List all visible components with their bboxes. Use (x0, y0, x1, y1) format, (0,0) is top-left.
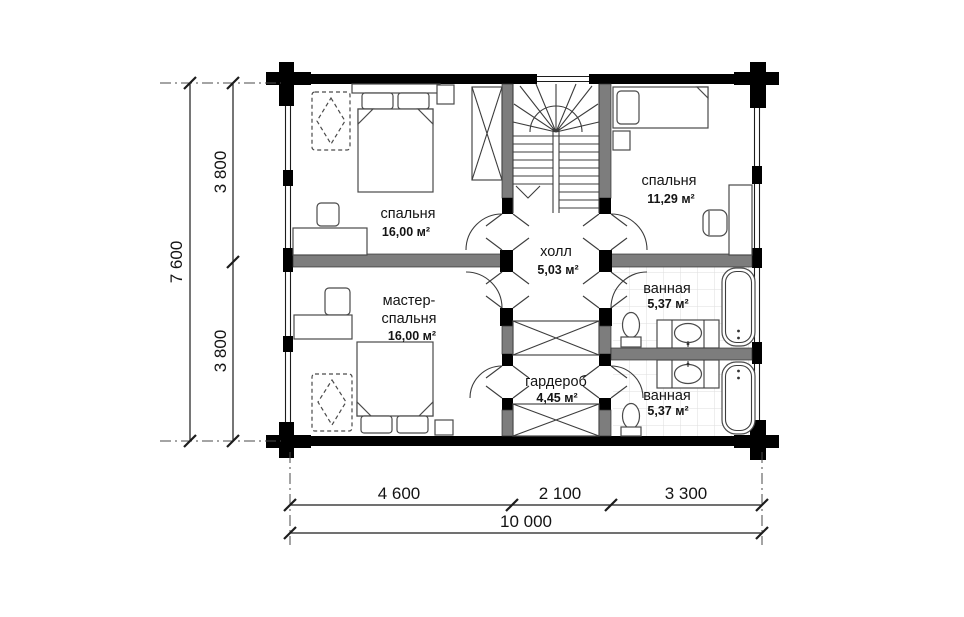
desk-icon (729, 185, 752, 255)
dim-horizontal-total: 10 000 (500, 512, 552, 531)
dimension-lines-left: 7 600 3 800 3 800 (160, 77, 281, 447)
room-area-bathroom-lower: 5,37 м² (647, 404, 688, 418)
bathtub-icon (722, 268, 755, 346)
desk-icon (294, 315, 352, 339)
dim-horizontal-left: 4 600 (378, 484, 421, 503)
room-area-bathroom-upper: 5,37 м² (647, 297, 688, 311)
room-label-bathroom-upper: ванная (643, 281, 691, 297)
nightstand-icon (613, 131, 630, 150)
double-bed-icon (352, 84, 440, 192)
room-area-bedroom-top-left: 16,00 м² (382, 225, 430, 239)
floor-plan-drawing: спальня 16,00 м² спальня 11,29 м² холл 5… (0, 0, 964, 617)
dim-horizontal-right: 3 300 (665, 484, 708, 503)
stairs-icon (513, 84, 599, 213)
single-bed-icon (613, 87, 708, 128)
room-label-wardrobe: гардероб (525, 374, 587, 390)
dim-vertical-total: 7 600 (167, 241, 186, 284)
room-area-hall: 5,03 м² (537, 263, 578, 277)
sink-vanity-icon (657, 360, 719, 388)
armchair-icon (312, 374, 352, 431)
stool-icon (325, 288, 350, 315)
wardrobe-x-icon (472, 87, 502, 180)
desk-icon (293, 228, 367, 255)
dim-vertical-bottom: 3 800 (211, 330, 230, 373)
armchair-icon (312, 92, 350, 150)
stool-icon (317, 203, 339, 226)
room-area-bedroom-top-right: 11,29 м² (647, 192, 694, 206)
room-label-master-line1: мастер- (383, 293, 436, 309)
room-label-bedroom-top-left: спальня (380, 206, 435, 222)
dim-vertical-top: 3 800 (211, 151, 230, 194)
double-bed-icon (357, 342, 433, 433)
room-label-bedroom-top-right: спальня (641, 173, 696, 189)
sink-vanity-icon (657, 320, 719, 348)
bedroom-top-right-furniture (613, 87, 752, 255)
toilet-icon (621, 313, 641, 348)
chair-icon (703, 210, 727, 236)
dimension-lines-bottom: 4 600 2 100 3 300 10 000 (284, 452, 768, 545)
bathtub-icon (722, 362, 755, 434)
floor-plan: спальня 16,00 м² спальня 11,29 м² холл 5… (0, 0, 964, 617)
toilet-icon (621, 404, 641, 437)
dim-horizontal-middle: 2 100 (539, 484, 582, 503)
room-label-hall: холл (540, 244, 572, 260)
room-area-master: 16,00 м² (388, 329, 436, 343)
nightstand-icon (437, 85, 454, 104)
room-area-wardrobe: 4,45 м² (536, 391, 577, 405)
nightstand-icon (435, 420, 453, 435)
room-label-master-line2: спальня (381, 311, 436, 327)
room-label-bathroom-lower: ванная (643, 388, 691, 404)
